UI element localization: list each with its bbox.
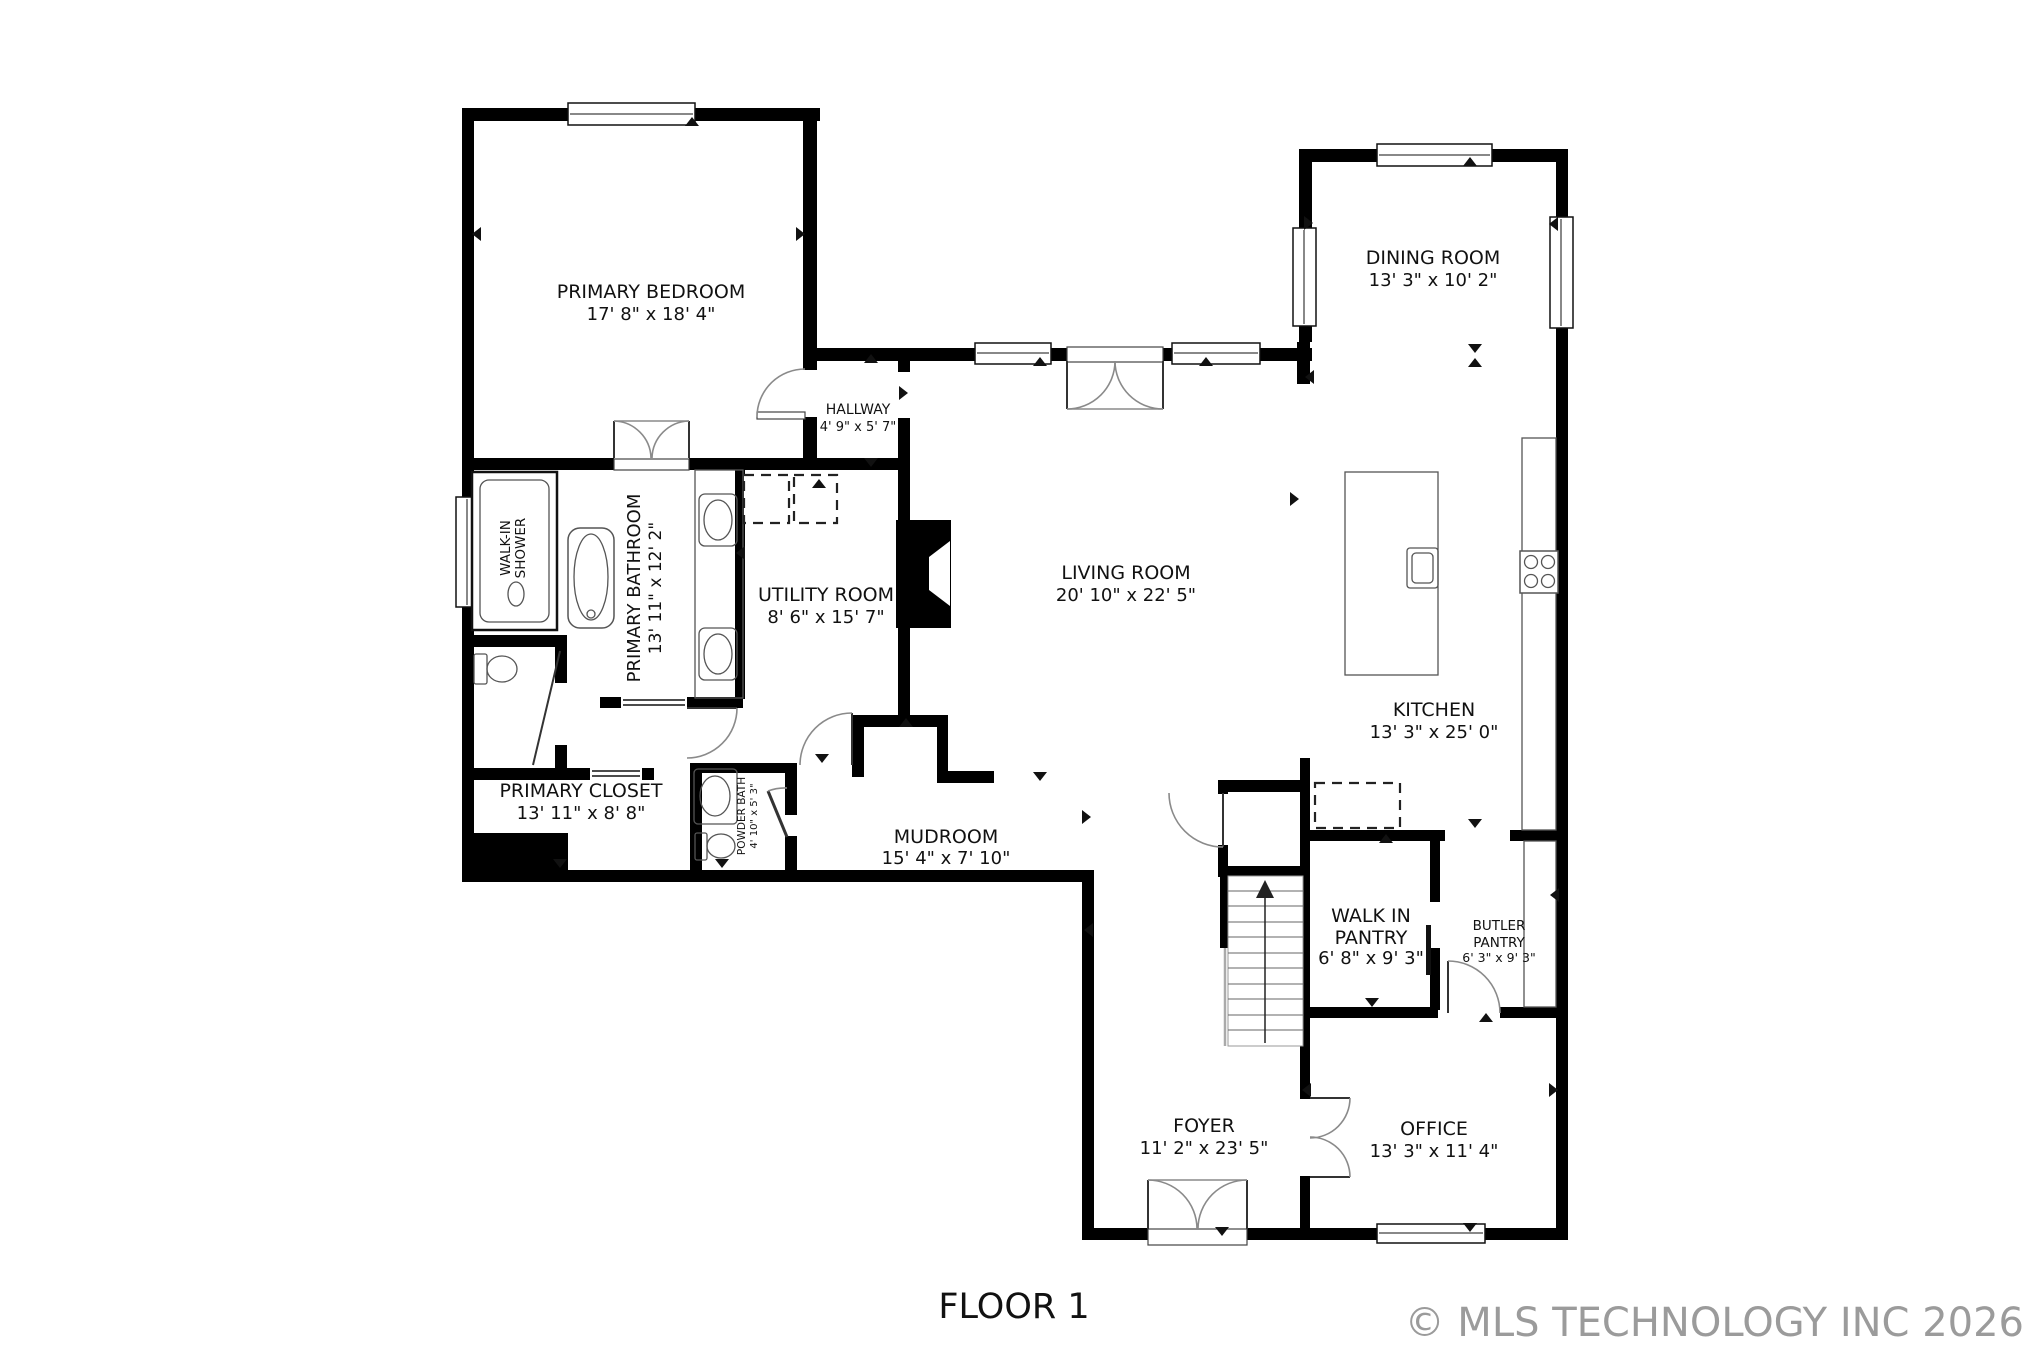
- label-walk-in-pantry-2: PANTRY: [1335, 927, 1408, 949]
- kitchen-counter: [1522, 438, 1556, 830]
- door-understairs-closet: [1169, 793, 1223, 847]
- bathtub: [568, 528, 614, 628]
- stairs: [1225, 876, 1303, 1046]
- window-dining-left: [1293, 228, 1316, 326]
- label-walk-in-pantry-1: WALK IN: [1331, 905, 1411, 927]
- window-dining-right: [1550, 217, 1573, 328]
- label-hallway-dims: 4' 9" x 5' 7": [820, 420, 896, 435]
- door-vestibule: [687, 708, 737, 758]
- washer-dryer: [744, 475, 837, 523]
- svg-text:WALK-IN: WALK-IN: [498, 520, 514, 576]
- floor-title: FLOOR 1: [938, 1287, 1089, 1327]
- toilet: [474, 654, 517, 684]
- label-walk-in-pantry-dims: 6' 8" x 9' 3": [1318, 948, 1424, 969]
- door-pantry-pocket: [1426, 925, 1431, 975]
- window-living-right: [1172, 343, 1260, 364]
- svg-text:13' 11" x 12' 2": 13' 11" x 12' 2": [646, 522, 666, 654]
- label-kitchen-dims: 13' 3" x 25' 0": [1370, 722, 1499, 743]
- label-utility-room-dims: 8' 6" x 15' 7": [767, 607, 884, 628]
- door-entry-french: [1148, 1180, 1247, 1229]
- label-mudroom-dims: 15' 4" x 7' 10": [882, 848, 1011, 869]
- refrigerator: [1315, 783, 1400, 828]
- label-butler-pantry-dims: 6' 3" x 9' 3": [1462, 950, 1535, 965]
- label-dining-room-dims: 13' 3" x 10' 2": [1369, 270, 1498, 291]
- threshold-living-french: [1067, 347, 1163, 362]
- label-butler-pantry-2: PANTRY: [1473, 935, 1525, 951]
- floor-plan-page: PRIMARY BEDROOM 17' 8" x 18' 4" HALLWAY …: [0, 0, 2030, 1360]
- door-butler-pantry: [1448, 961, 1500, 1013]
- label-primary-bathroom: PRIMARY BATHROOM 13' 11" x 12' 2": [624, 494, 666, 683]
- label-office: OFFICE: [1400, 1118, 1468, 1140]
- label-primary-closet: PRIMARY CLOSET: [499, 780, 662, 802]
- door-office-french: [1310, 1098, 1350, 1177]
- label-living-room: LIVING ROOM: [1061, 562, 1190, 584]
- range-stove: [1520, 551, 1558, 593]
- svg-text:PRIMARY BATHROOM: PRIMARY BATHROOM: [624, 494, 645, 683]
- fireplace: [896, 520, 951, 628]
- butler-counter: [1524, 841, 1556, 1007]
- label-dining-room: DINING ROOM: [1366, 247, 1501, 269]
- door-living-french: [1067, 361, 1163, 409]
- label-living-room-dims: 20' 10" x 22' 5": [1056, 585, 1196, 606]
- label-hallway: HALLWAY: [826, 402, 891, 418]
- threshold-entry: [1148, 1229, 1247, 1245]
- svg-text:4' 10" x 5' 3": 4' 10" x 5' 3": [749, 783, 760, 848]
- door-closet-sliding: [590, 768, 642, 780]
- door-powder-bath: [768, 788, 787, 837]
- label-primary-closet-dims: 13' 11" x 8' 8": [517, 803, 646, 824]
- svg-text:SHOWER: SHOWER: [513, 518, 529, 579]
- label-mudroom: MUDROOM: [894, 826, 998, 848]
- label-butler-pantry-1: BUTLER: [1473, 918, 1526, 934]
- label-primary-bedroom: PRIMARY BEDROOM: [557, 281, 745, 303]
- label-primary-bedroom-dims: 17' 8" x 18' 4": [587, 304, 716, 325]
- door-bedroom-hallway: [757, 369, 805, 419]
- closet-built-in: [470, 833, 568, 870]
- threshold-bedroom-french: [614, 459, 689, 470]
- label-kitchen: KITCHEN: [1393, 699, 1475, 721]
- door-bedroom-french: [614, 421, 689, 458]
- label-walk-in-shower: WALK-IN SHOWER: [498, 518, 529, 579]
- window-dining-top: [1377, 144, 1492, 166]
- window-bedroom-top: [568, 103, 695, 125]
- label-foyer-dims: 11' 2" x 23' 5": [1140, 1138, 1269, 1159]
- label-powder-bath: POWDER BATH 4' 10" x 5' 3": [736, 777, 760, 855]
- label-office-dims: 13' 3" x 11' 4": [1370, 1141, 1499, 1162]
- copyright-watermark: © MLS TECHNOLOGY INC 2026: [1405, 1300, 2024, 1346]
- label-foyer: FOYER: [1173, 1115, 1235, 1137]
- label-utility-room: UTILITY ROOM: [758, 584, 894, 606]
- floor-plan-drawing: PRIMARY BEDROOM 17' 8" x 18' 4" HALLWAY …: [0, 0, 2030, 1360]
- door-bathroom-sliding: [621, 697, 687, 708]
- svg-text:POWDER BATH: POWDER BATH: [736, 777, 748, 855]
- kitchen-island: [1345, 472, 1438, 675]
